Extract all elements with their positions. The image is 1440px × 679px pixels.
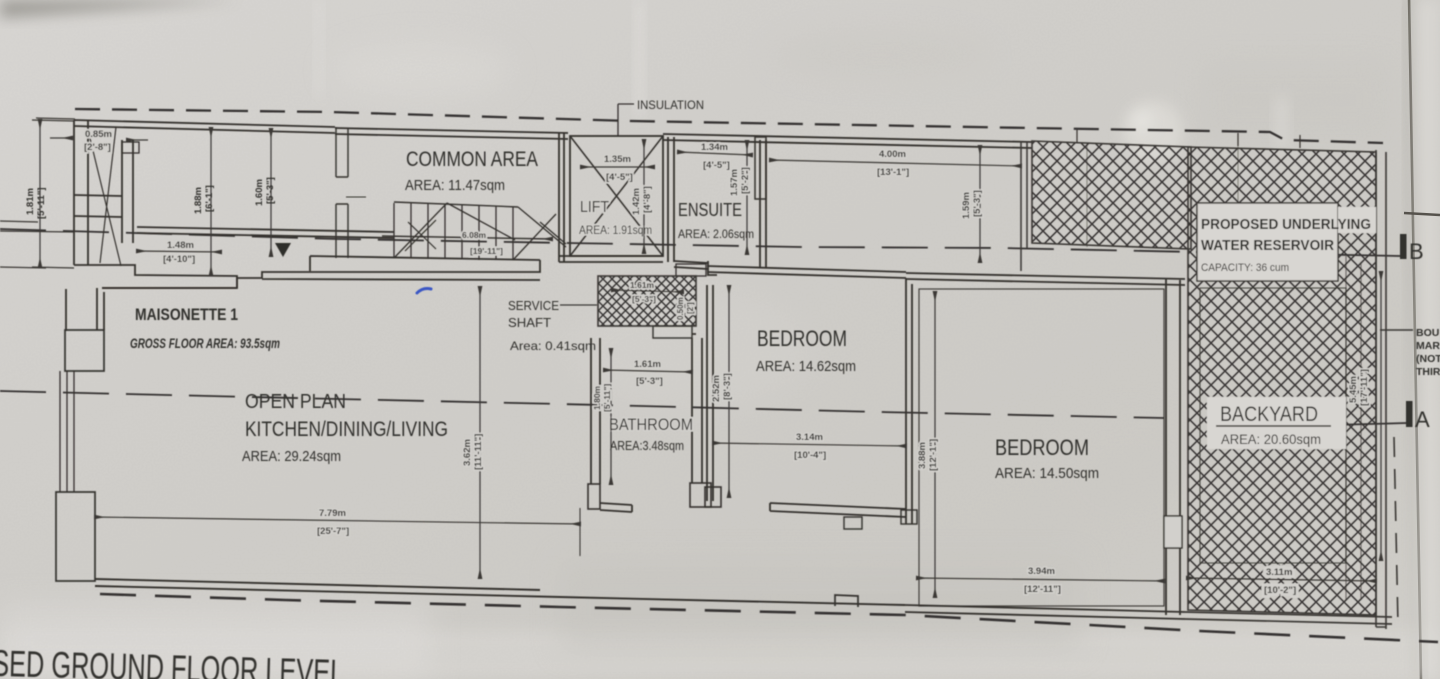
svg-text:OPEN PLAN: OPEN PLAN xyxy=(245,391,346,413)
svg-text:5.45m: 5.45m xyxy=(1348,376,1359,403)
svg-text:SHAFT: SHAFT xyxy=(508,315,551,330)
svg-text:3.62m: 3.62m xyxy=(462,439,473,466)
svg-text:GROSS FLOOR AREA: 93.5sqm: GROSS FLOOR AREA: 93.5sqm xyxy=(130,336,280,351)
svg-text:AREA: 2.06sqm: AREA: 2.06sqm xyxy=(678,227,754,241)
svg-text:1.59m: 1.59m xyxy=(961,192,972,219)
svg-text:INSULATION: INSULATION xyxy=(637,98,704,112)
svg-text:LIFT: LIFT xyxy=(580,199,609,216)
svg-text:1.61m: 1.61m xyxy=(634,359,661,370)
svg-text:2.52m: 2.52m xyxy=(711,375,722,402)
svg-text:MAISONETTE 1: MAISONETTE 1 xyxy=(135,305,238,324)
svg-text:BEDROOM: BEDROOM xyxy=(757,326,847,351)
svg-text:6.08m: 6.08m xyxy=(462,230,487,240)
svg-text:[12'-11"]: [12'-11"] xyxy=(1024,584,1061,595)
svg-text:AREA: 14.62sqm: AREA: 14.62sqm xyxy=(756,358,856,375)
svg-text:[2']: [2'] xyxy=(686,302,695,314)
svg-text:[5'-3"]: [5'-3"] xyxy=(632,294,656,304)
svg-text:[4'-10"]: [4'-10"] xyxy=(163,254,195,265)
svg-text:[11'-11"]: [11'-11"] xyxy=(473,434,484,470)
svg-text:[17'-11"]: [17'-11"] xyxy=(1359,369,1370,406)
svg-text:THIR: THIR xyxy=(1416,366,1440,378)
svg-text:[5'-2"]: [5'-2"] xyxy=(740,167,751,194)
svg-text:A: A xyxy=(1415,407,1430,432)
svg-text:[2'-8"]: [2'-8"] xyxy=(84,142,111,153)
svg-text:[5'-11"]: [5'-11"] xyxy=(36,187,47,219)
svg-text:ENSUITE: ENSUITE xyxy=(678,200,742,220)
svg-text:3.88m: 3.88m xyxy=(917,442,928,469)
svg-text:BEDROOM: BEDROOM xyxy=(995,435,1089,460)
svg-text:1.34m: 1.34m xyxy=(701,142,728,153)
svg-text:PROPOSED UNDERLYING: PROPOSED UNDERLYING xyxy=(1201,217,1371,233)
svg-text:1.57m: 1.57m xyxy=(729,169,740,196)
svg-text:(NOT: (NOT xyxy=(1416,353,1440,365)
svg-text:AREA:3.48sqm: AREA:3.48sqm xyxy=(610,439,684,453)
svg-text:1.80m: 1.80m xyxy=(592,385,602,410)
svg-text:3.11m: 3.11m xyxy=(1266,567,1292,578)
svg-text:COMMON AREA: COMMON AREA xyxy=(406,148,538,171)
svg-text:[6'-1"]: [6'-1"] xyxy=(204,185,215,212)
svg-text:[5'-11"]: [5'-11"] xyxy=(602,384,612,412)
svg-text:BATHROOM: BATHROOM xyxy=(609,415,693,434)
svg-text:SERVICE: SERVICE xyxy=(508,298,559,313)
svg-text:CAPACITY: 36 cum: CAPACITY: 36 cum xyxy=(1201,262,1289,274)
svg-text:[4'-5"]: [4'-5"] xyxy=(606,172,633,183)
svg-text:BOU: BOU xyxy=(1416,327,1439,339)
svg-text:[4'-5"]: [4'-5"] xyxy=(703,160,730,171)
svg-text:[19'-11"]: [19'-11"] xyxy=(470,246,503,256)
svg-text:3.94m: 3.94m xyxy=(1028,566,1055,577)
svg-text:BACKYARD: BACKYARD xyxy=(1220,403,1318,426)
svg-text:3.14m: 3.14m xyxy=(796,432,823,443)
svg-text:4.00m: 4.00m xyxy=(879,149,906,160)
svg-text:AREA: 1.91sqm: AREA: 1.91sqm xyxy=(579,223,652,237)
svg-text:AREA: 14.50sqm: AREA: 14.50sqm xyxy=(995,465,1099,482)
svg-text:1.81m: 1.81m xyxy=(25,188,36,215)
svg-text:1.60m: 1.60m xyxy=(254,179,265,206)
svg-text:Area: 0.41sqm: Area: 0.41sqm xyxy=(510,339,596,353)
svg-text:7.79m: 7.79m xyxy=(319,508,346,519)
svg-text:1.48m: 1.48m xyxy=(167,240,194,251)
svg-text:1.35m: 1.35m xyxy=(604,154,631,165)
svg-text:[10'-2"]: [10'-2"] xyxy=(1264,585,1296,596)
svg-text:[4'-8"]: [4'-8"] xyxy=(642,186,653,213)
svg-text:1.42m: 1.42m xyxy=(631,188,642,215)
svg-text:[13'-1"]: [13'-1"] xyxy=(877,167,909,178)
svg-text:0.50m: 0.50m xyxy=(676,297,685,320)
svg-text:[8'-3"]: [8'-3"] xyxy=(722,373,733,400)
svg-text:WATER RESERVOIR: WATER RESERVOIR xyxy=(1201,238,1334,254)
svg-text:1.61m: 1.61m xyxy=(630,280,655,290)
svg-text:KITCHEN/DINING/LIVING: KITCHEN/DINING/LIVING xyxy=(245,418,448,441)
svg-text:[5'-3"]: [5'-3"] xyxy=(636,376,663,387)
svg-text:[5'-3"]: [5'-3"] xyxy=(972,190,983,217)
svg-text:[10'-4"]: [10'-4"] xyxy=(794,450,826,461)
svg-text:B: B xyxy=(1409,239,1424,264)
svg-text:AREA: 11.47sqm: AREA: 11.47sqm xyxy=(405,177,505,194)
svg-text:[5'-3"]: [5'-3"] xyxy=(265,177,276,204)
svg-text:AREA: 29.24sqm: AREA: 29.24sqm xyxy=(242,448,341,465)
svg-text:[12'-1"]: [12'-1"] xyxy=(928,439,939,471)
svg-text:[25'-7"]: [25'-7"] xyxy=(317,526,349,537)
svg-text:1.88m: 1.88m xyxy=(193,187,204,214)
svg-text:MAR: MAR xyxy=(1416,340,1440,352)
svg-text:AREA: 20.60sqm: AREA: 20.60sqm xyxy=(1221,431,1321,447)
svg-text:0.85m: 0.85m xyxy=(85,129,112,140)
